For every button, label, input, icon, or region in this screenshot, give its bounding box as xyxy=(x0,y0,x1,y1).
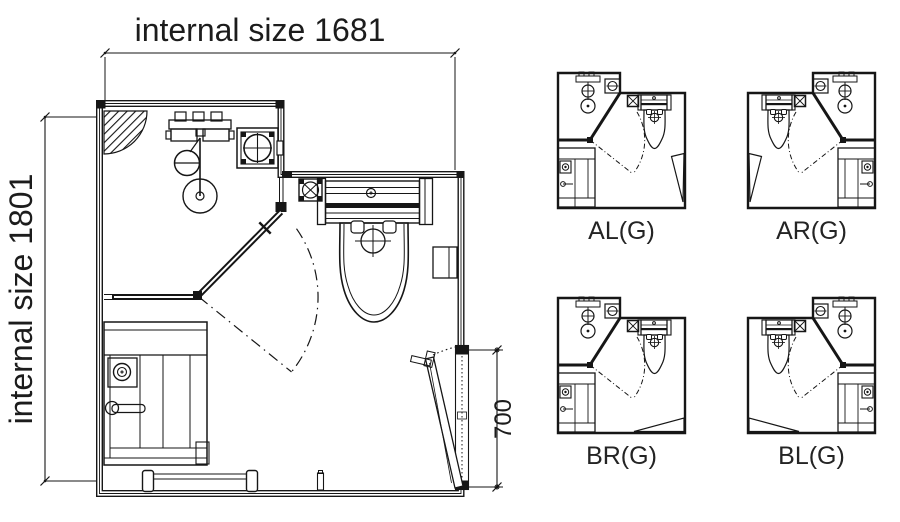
variant-label-alg: AL(G) xyxy=(543,218,700,244)
variant-floor-plan xyxy=(748,297,875,433)
shower-screen-diagonal xyxy=(104,178,287,300)
variant-label-blg: BL(G) xyxy=(733,443,890,469)
variant-floor-plan xyxy=(558,297,685,433)
main-floor-plan xyxy=(0,0,540,522)
door-stopper xyxy=(318,471,324,491)
variant-plan-alg xyxy=(543,60,700,215)
dimension-left-label: internal size 1801 xyxy=(4,119,38,479)
variant-plan-blg xyxy=(733,285,890,440)
entrance-door xyxy=(410,346,468,490)
vanity-basin-unit xyxy=(104,322,209,465)
shower-mixer xyxy=(166,112,234,196)
variant-floor-plan xyxy=(558,72,685,208)
wall-vent xyxy=(299,179,322,201)
variant-label-arg: AR(G) xyxy=(733,218,890,244)
variant-card-alg: AL(G) xyxy=(543,60,700,250)
dimension-top-label: internal size 1681 xyxy=(85,13,435,47)
variant-plan-arg xyxy=(733,60,890,215)
corner-shower-hatch xyxy=(104,111,147,154)
variant-card-brg: BR(G) xyxy=(543,285,700,475)
variant-label-brg: BR(G) xyxy=(543,443,700,469)
variant-floor-plan xyxy=(748,72,875,208)
toilet-roll-holder xyxy=(433,247,457,278)
shower-door-swing-arc xyxy=(199,229,318,372)
extractor-fan xyxy=(237,128,283,168)
bathroom-pod-drawing: internal size 1681 internal size 1801 70… xyxy=(0,0,900,522)
toilet-with-cistern xyxy=(318,179,433,323)
towel-rail xyxy=(143,471,258,492)
variant-card-arg: AR(G) xyxy=(733,60,890,250)
variant-plan-brg xyxy=(543,285,700,440)
dimension-door-label: 700 xyxy=(491,369,517,469)
variant-card-blg: BL(G) xyxy=(733,285,890,475)
